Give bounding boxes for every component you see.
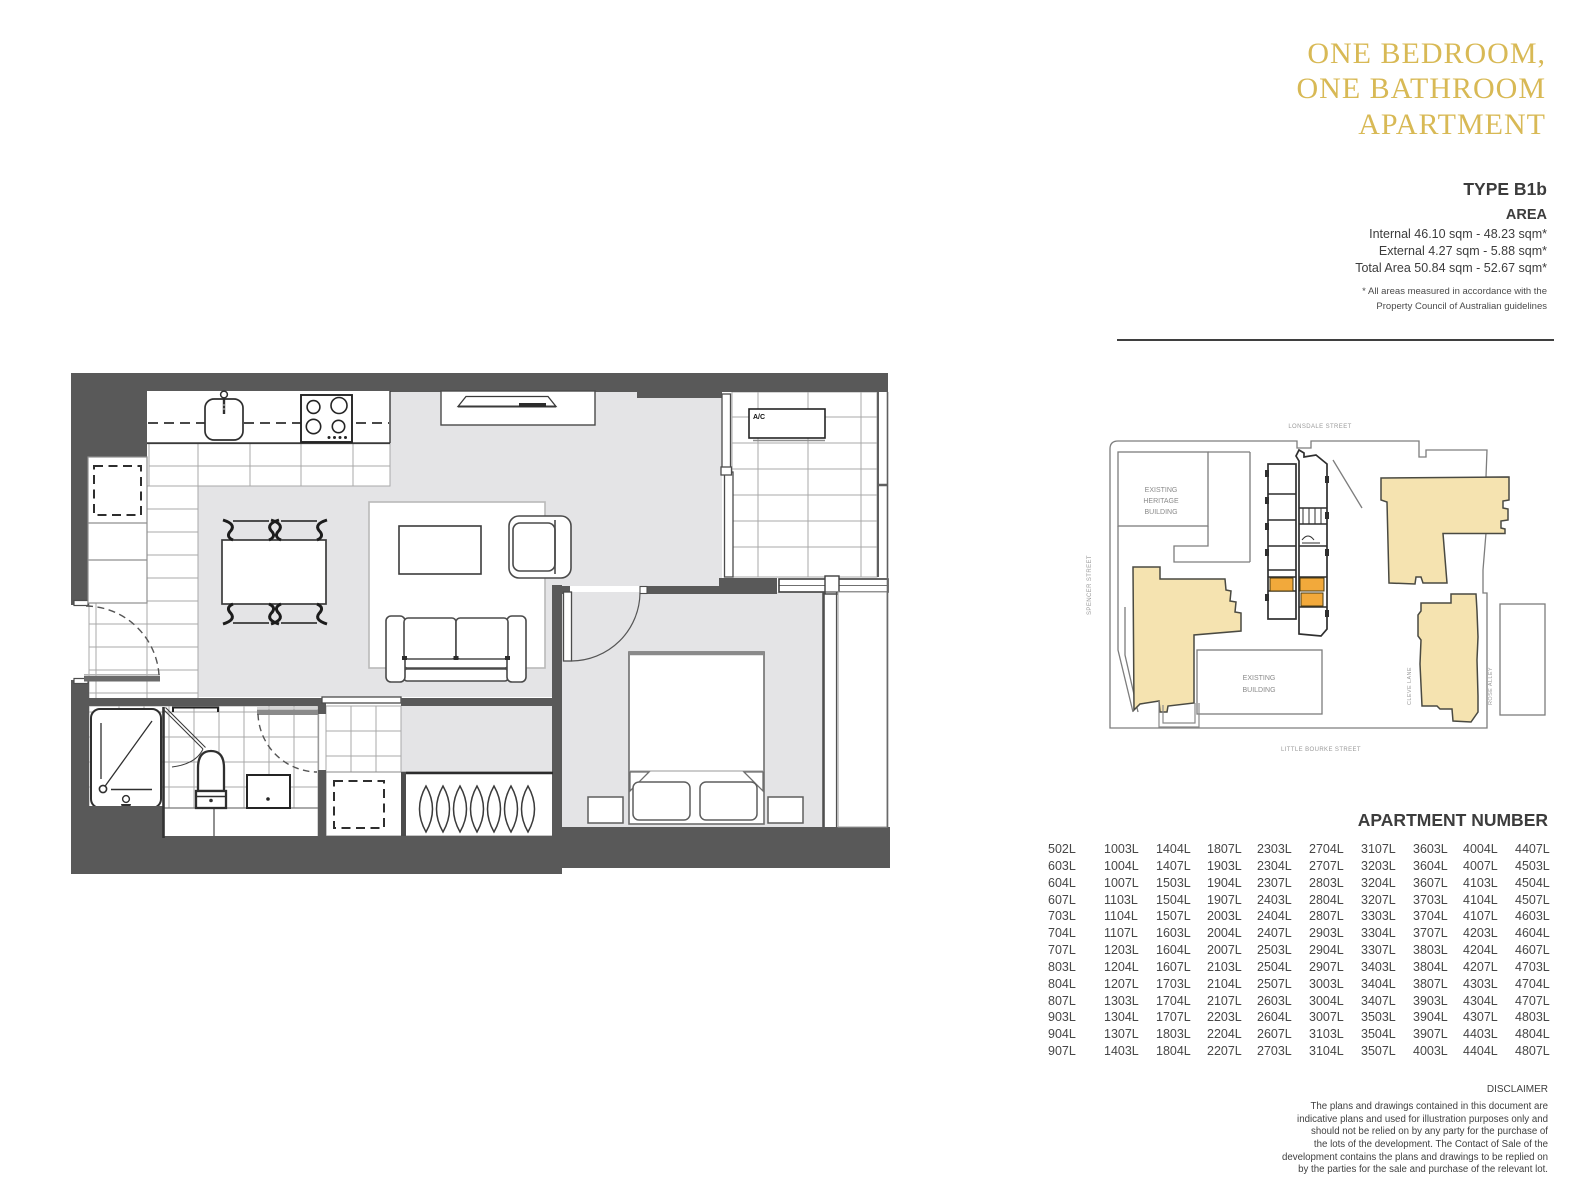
- svg-text:SPENCER STREET: SPENCER STREET: [1087, 555, 1093, 615]
- svg-text:LONSDALE STREET: LONSDALE STREET: [1288, 424, 1351, 430]
- svg-text:HERITAGE: HERITAGE: [1143, 498, 1179, 505]
- svg-text:EXISTING: EXISTING: [1145, 487, 1178, 494]
- svg-text:EXISTING: EXISTING: [1243, 675, 1276, 682]
- svg-text:CLEVE LANE: CLEVE LANE: [1407, 667, 1413, 705]
- svg-text:A/C: A/C: [753, 414, 765, 421]
- svg-text:LITTLE BOURKE STREET: LITTLE BOURKE STREET: [1281, 747, 1361, 753]
- svg-text:BUILDING: BUILDING: [1242, 687, 1275, 694]
- svg-text:ROSE ALLEY: ROSE ALLEY: [1488, 667, 1494, 705]
- svg-text:BUILDING: BUILDING: [1144, 509, 1177, 516]
